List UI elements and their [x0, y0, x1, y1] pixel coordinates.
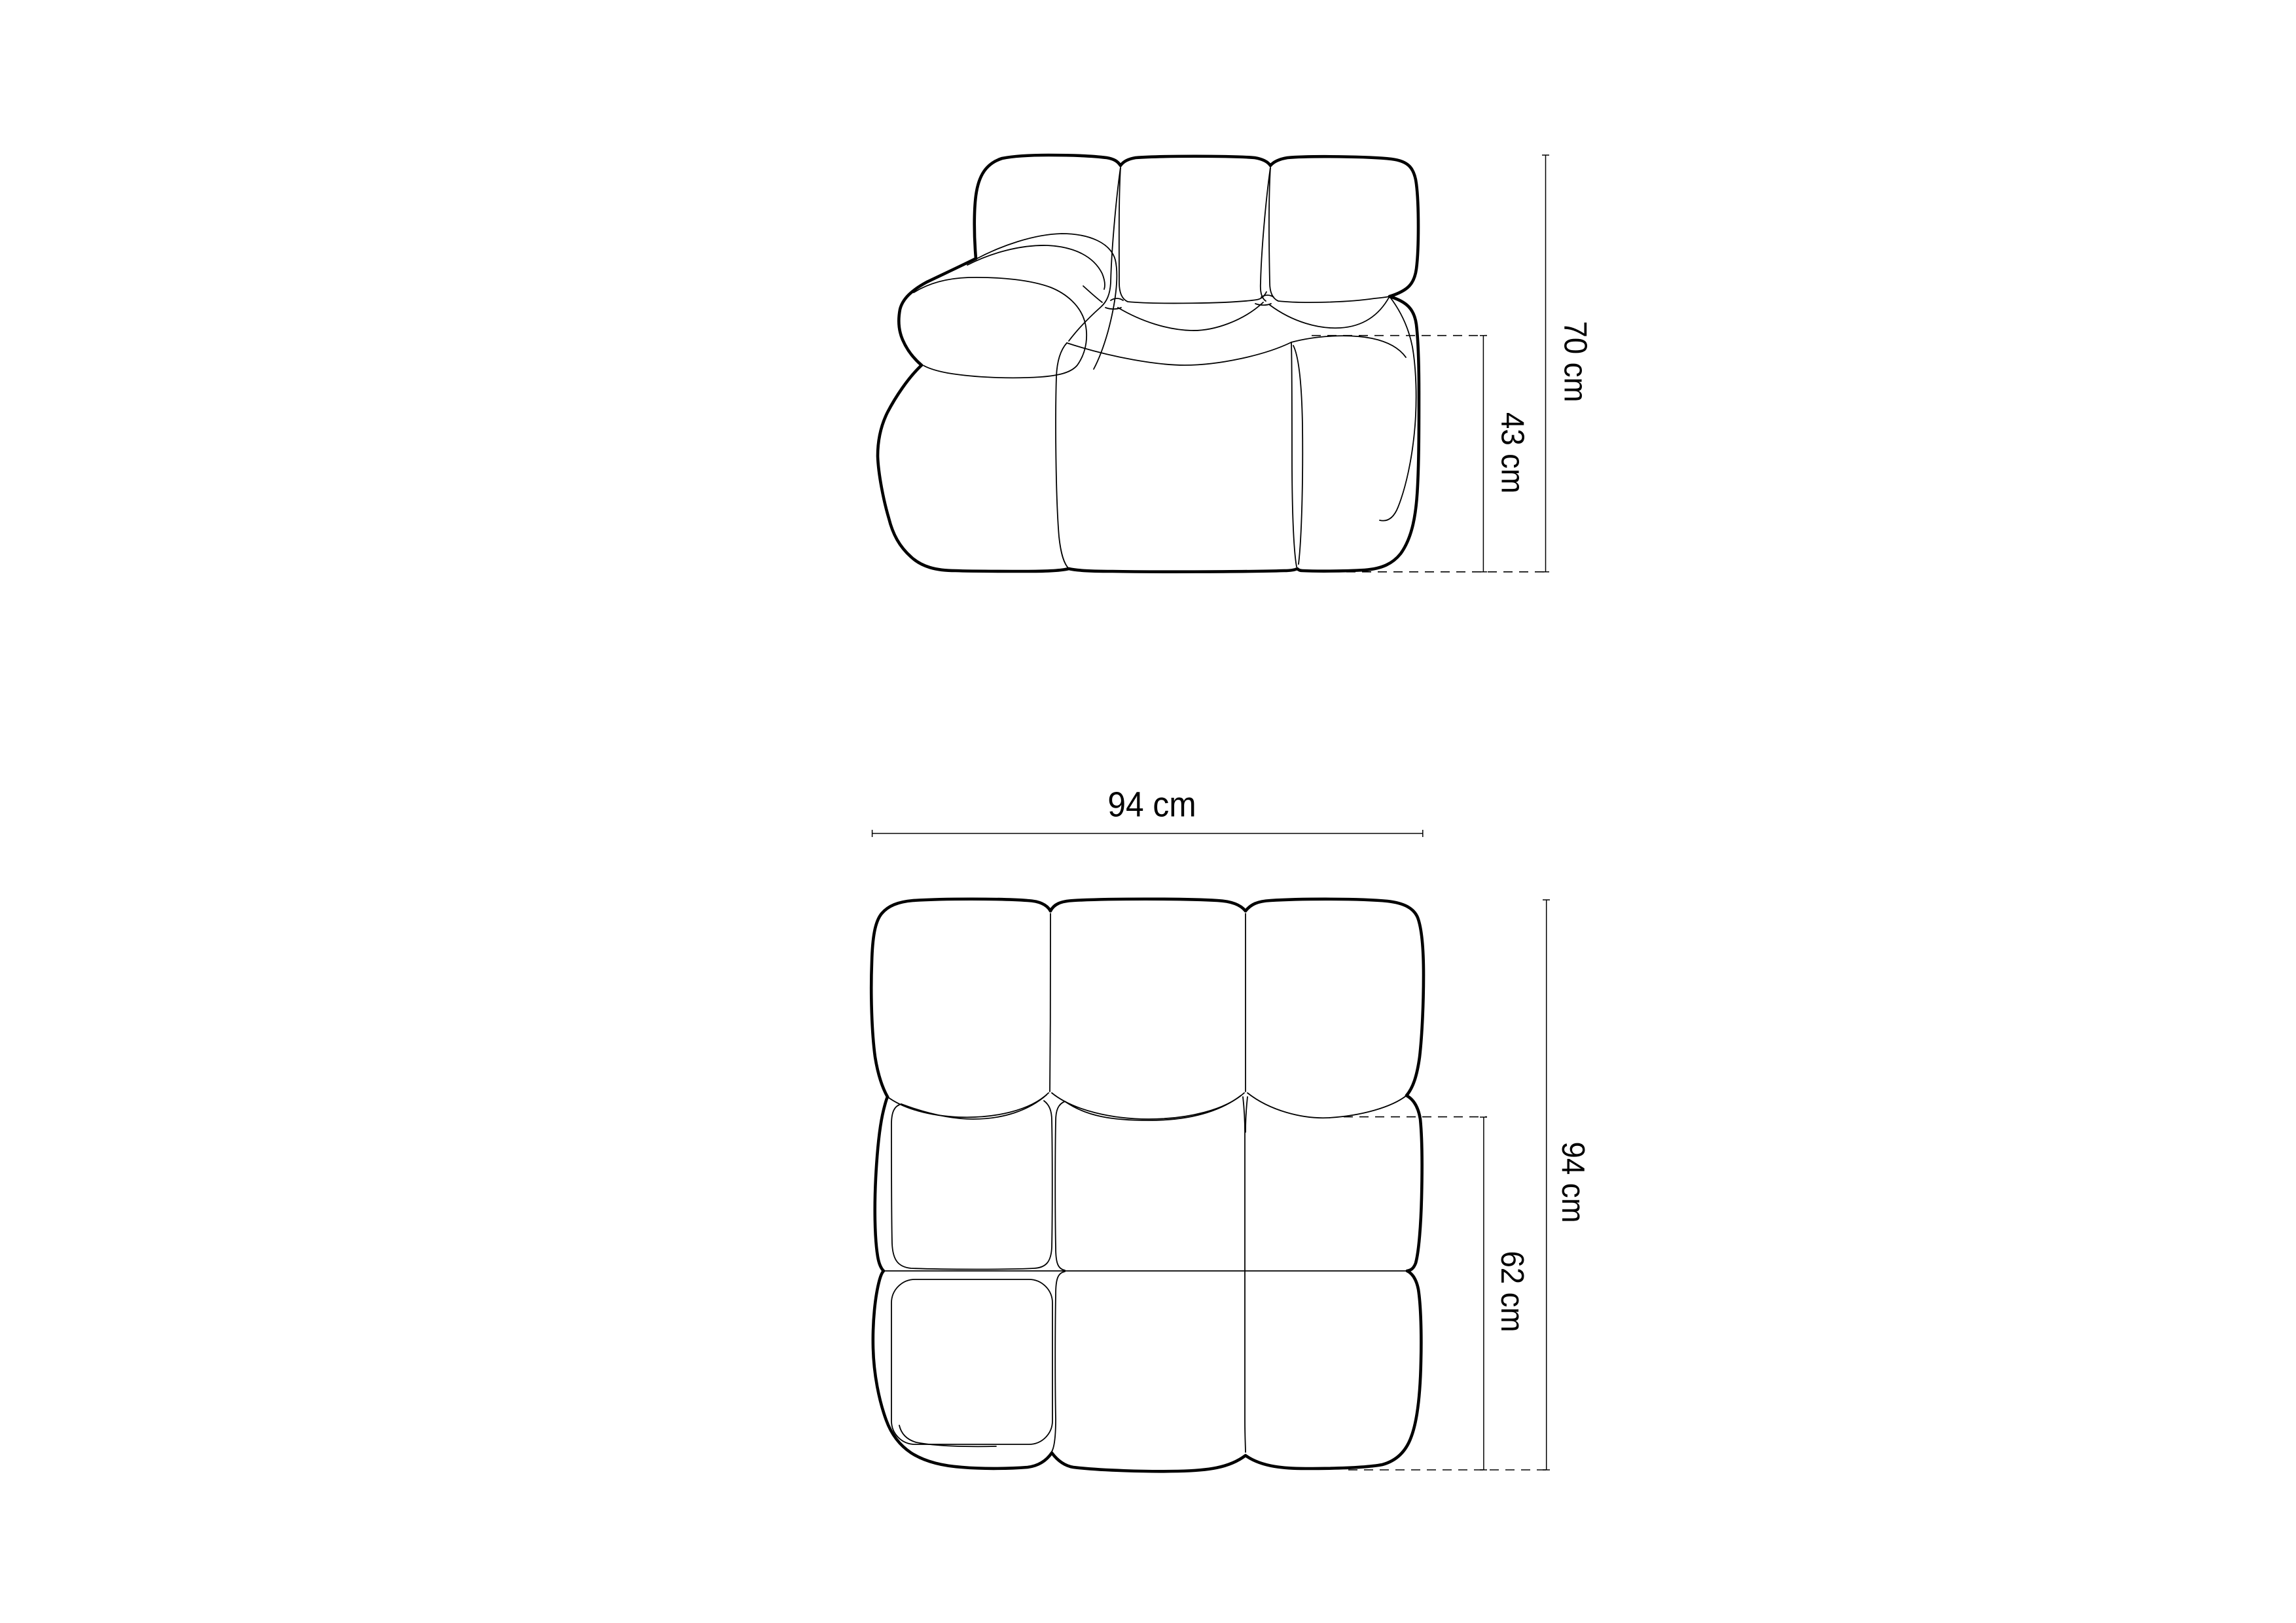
- svg-text:94 cm: 94 cm: [1555, 1141, 1591, 1222]
- svg-text:94 cm: 94 cm: [1107, 785, 1196, 824]
- svg-text:62 cm: 62 cm: [1494, 1251, 1530, 1332]
- svg-text:43 cm: 43 cm: [1494, 412, 1530, 493]
- svg-text:70 cm: 70 cm: [1557, 321, 1593, 402]
